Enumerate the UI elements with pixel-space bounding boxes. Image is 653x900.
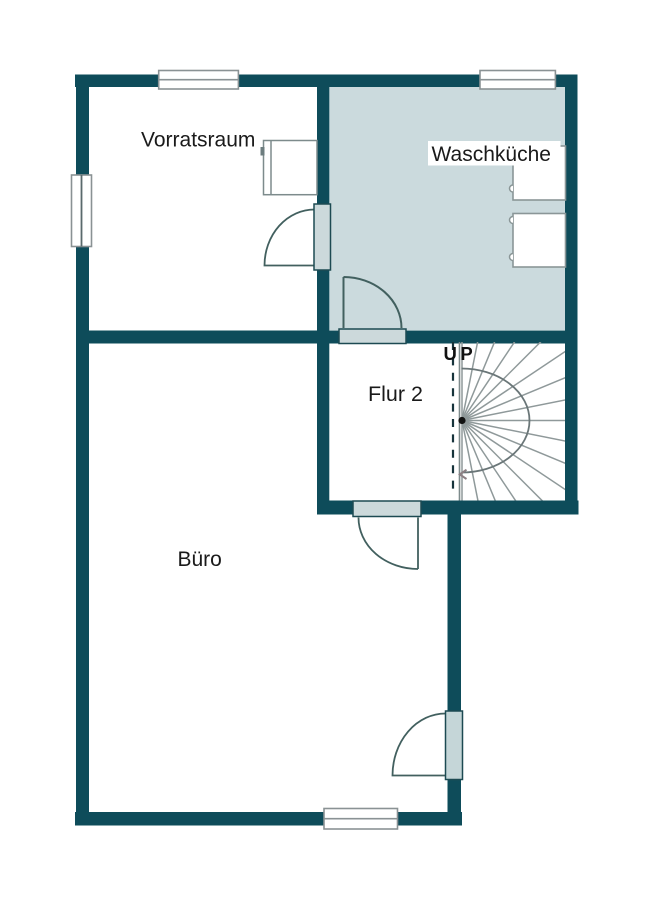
svg-text:UP: UP [444,343,477,364]
svg-text:Vorratsraum: Vorratsraum [141,129,255,152]
svg-text:Flur 2: Flur 2 [368,382,423,406]
svg-text:Büro: Büro [178,548,222,571]
svg-text:Waschküche: Waschküche [432,143,551,166]
